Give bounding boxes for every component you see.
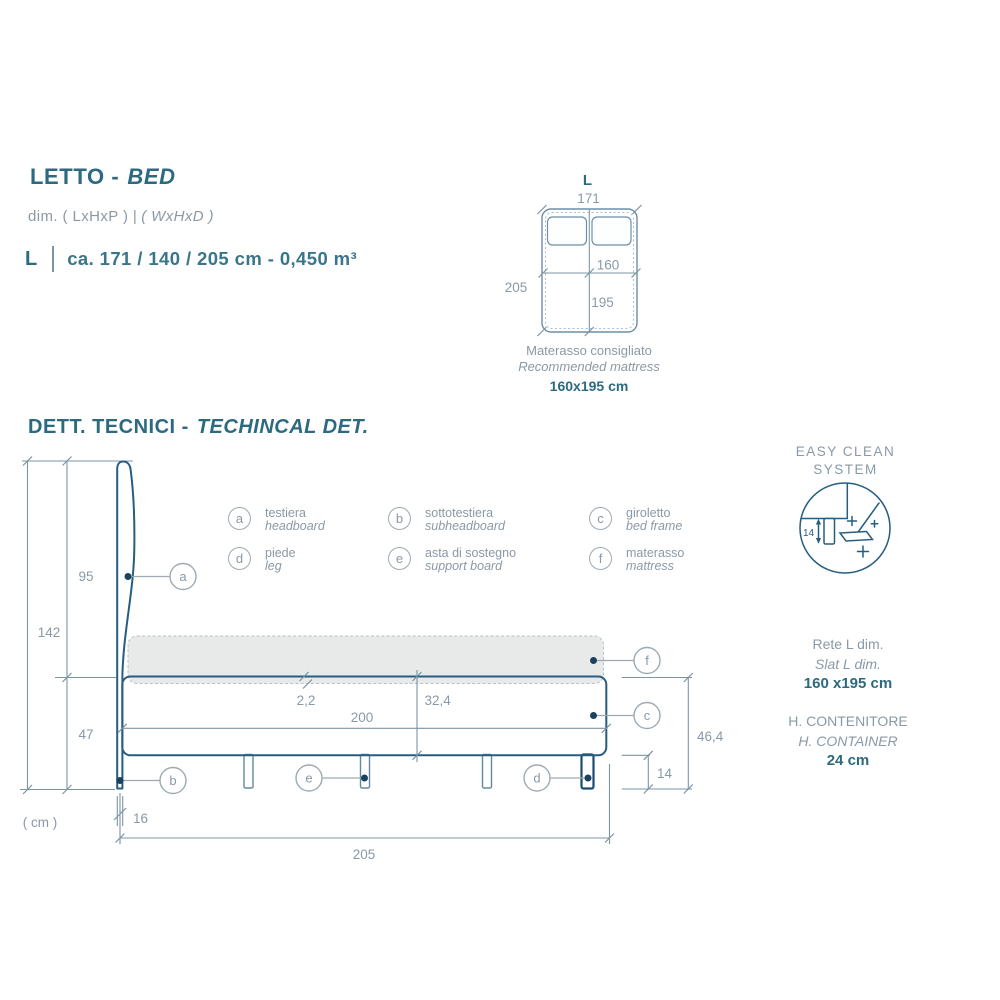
dim-tick <box>538 327 547 336</box>
section-title: DETT. TECNICI -TECHINCAL DET. <box>28 416 369 439</box>
callout-letter-a: a <box>179 569 187 584</box>
mattress-caption-it: Materasso consigliato <box>489 343 689 359</box>
bed-top-view: L 171 160 195 205 <box>505 172 642 336</box>
headboard-height-dim: 95 <box>78 569 93 584</box>
easy-clean-icon: 14 <box>800 483 890 573</box>
legend-label-en: mattress <box>626 560 684 573</box>
callout-letter-f: f <box>645 653 649 668</box>
container-height-value: 24 cm <box>748 751 948 771</box>
top-view-mattress-length-dim: 195 <box>591 295 614 310</box>
container-height-label-en: H. CONTAINER <box>748 731 948 751</box>
page-title: LETTO -BED <box>30 164 176 190</box>
legend-label-en: headboard <box>265 520 325 533</box>
legend-letter-f: f <box>589 547 612 570</box>
dimension-note: dim. ( LxHxP ) |( WxHxD ) <box>28 208 214 225</box>
inner-length-dim: 200 <box>351 710 374 725</box>
pillow-right <box>592 217 631 245</box>
spec-sheet-page: L 171 160 195 205 <box>0 0 1000 1000</box>
container-height-label-it: H. CONTENITORE <box>748 711 948 731</box>
top-view-mattress-width-dim: 160 <box>597 258 620 273</box>
support-leg <box>483 755 492 789</box>
callout-letter-d: d <box>533 771 540 786</box>
legend-item-leg: d piedeleg <box>228 547 296 572</box>
size-spec-value: ca. 171 / 140 / 205 cm - 0,450 m³ <box>67 248 357 270</box>
page-title-en: BED <box>127 164 175 189</box>
top-view-width-dim: 171 <box>577 191 600 206</box>
clearance-dim: 14 <box>803 528 815 539</box>
legend-letter-c: c <box>589 507 612 530</box>
legend-label-en: support board <box>425 560 516 573</box>
side-info-column: Rete L dim. Slat L dim. 160 x195 cm H. C… <box>748 634 948 771</box>
dim-tick <box>633 205 642 214</box>
legend-label-it: giroletto <box>626 507 682 520</box>
legend-label-en: bed frame <box>626 520 682 533</box>
slat-size-label-en: Slat L dim. <box>748 654 948 674</box>
top-view-size-letter: L <box>583 172 592 189</box>
callout-dot-c <box>590 712 597 719</box>
callout-letter-b: b <box>169 773 176 788</box>
support-leg <box>361 755 370 789</box>
legend-label-it: asta di sostegno <box>425 547 516 560</box>
legend-label-it: materasso <box>626 547 684 560</box>
leg-height-dim: 14 <box>657 766 673 781</box>
section-title-en: TECHINCAL DET. <box>197 416 369 438</box>
legend-letter-d: d <box>228 547 251 570</box>
legend-label-it: testiera <box>265 507 325 520</box>
page-title-it: LETTO - <box>30 164 119 189</box>
mattress-caption-size: 160x195 cm <box>489 379 689 395</box>
section-title-it: DETT. TECNICI - <box>28 416 189 438</box>
divider <box>52 246 54 272</box>
callout-letter-c: c <box>644 708 651 723</box>
unit-label: ( cm ) <box>23 815 58 830</box>
easy-clean-title-line1: EASY CLEAN <box>773 443 918 461</box>
headboard-shape <box>117 462 134 789</box>
legend-letter-a: a <box>228 507 251 530</box>
bed-corner-leg <box>824 519 835 545</box>
easy-clean-title: EASY CLEAN SYSTEM <box>773 443 918 479</box>
callout-dot-a <box>125 573 132 580</box>
slat-thickness-dim: 2,2 <box>297 693 316 708</box>
slat-size-label-it: Rete L dim. <box>748 634 948 654</box>
legend-item-bed-frame: c girolettobed frame <box>589 507 682 532</box>
mop-head <box>840 532 873 542</box>
dimension-note-en: ( WxHxD ) <box>141 208 214 225</box>
legend-label-en: leg <box>265 560 296 573</box>
slat-size-value: 160 x195 cm <box>748 674 948 694</box>
legend-item-headboard: a testieraheadboard <box>228 507 325 532</box>
legend-label-it: sottotestiera <box>425 507 505 520</box>
callout-letter-e: e <box>305 771 312 786</box>
total-length-dim: 205 <box>353 847 376 862</box>
total-height-dim: 142 <box>38 625 61 640</box>
base-height-dim: 47 <box>78 727 93 742</box>
size-letter: L <box>25 248 37 271</box>
callout-dot-f <box>590 657 597 664</box>
mattress-caption-en: Recommended mattress <box>489 359 689 375</box>
callout-dot-b <box>117 777 124 784</box>
technical-drawing-canvas: L 171 160 195 205 <box>0 0 1000 1000</box>
legend-item-subheadboard: b sottotestierasubheadboard <box>388 507 505 532</box>
top-view-length-dim: 205 <box>505 280 528 295</box>
dimension-note-it: dim. ( LxHxP ) | <box>28 208 137 225</box>
legend-item-support-board: e asta di sostegnosupport board <box>388 547 516 572</box>
callout-dot-d <box>585 775 592 782</box>
legend-label-it: piede <box>265 547 296 560</box>
container-total-height-dim: 46,4 <box>697 729 724 744</box>
callout-dot-e <box>361 775 368 782</box>
bed-foot-highlighted <box>582 755 594 789</box>
legend-label-en: subheadboard <box>425 520 505 533</box>
headboard-thickness-dim: 16 <box>133 811 148 826</box>
easy-clean-title-line2: SYSTEM <box>773 461 918 479</box>
size-spec-row: L ca. 171 / 140 / 205 cm - 0,450 m³ <box>25 246 357 272</box>
bed-leg <box>244 755 253 789</box>
legend-letter-e: e <box>388 547 411 570</box>
pillow-left <box>548 217 587 245</box>
mattress-caption: Materasso consigliato Recommended mattre… <box>489 343 689 395</box>
legend-item-mattress: f materassomattress <box>589 547 684 572</box>
frame-height-dim: 32,4 <box>425 693 452 708</box>
legend-letter-b: b <box>388 507 411 530</box>
